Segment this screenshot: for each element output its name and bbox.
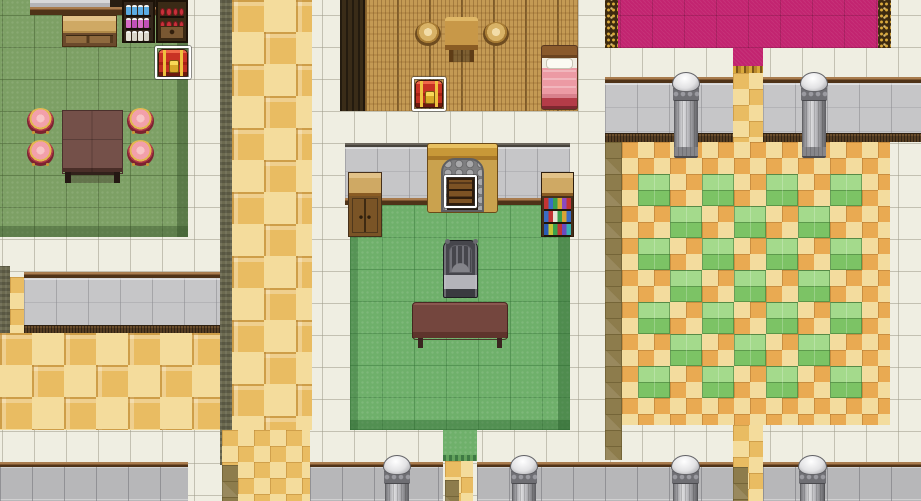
hall-left-edge-gold [10,277,24,333]
stool-pink-1 [27,108,54,134]
shelf-row [126,16,151,30]
green-quilt-tile [670,270,702,302]
green-quilt-tile [798,206,830,238]
book-row [544,211,571,224]
floor-gold-lower-left [0,333,222,430]
selection-barrel [444,175,477,208]
floor-checker-room [622,142,890,425]
tavern-table [62,110,123,185]
wood-room-table [445,17,478,62]
hall-left-edge-shadow [0,266,10,333]
carpet-doorway [733,48,763,73]
corridor-gold [232,0,312,430]
checker-room-shadow [605,142,622,460]
shelf-row [126,3,151,17]
green-quilt-tile [702,302,734,334]
right-wall-ledge-a [605,133,733,142]
green-quilt-tile [638,302,670,334]
green-quilt-tile [766,174,798,206]
bottle-icon [132,18,137,28]
pillar-bottom-1 [383,455,411,501]
green-doorway-olive [445,480,459,501]
pillar-dome [383,455,411,475]
right-wall-face-a [605,83,733,133]
bottom-doorway-olive-right [733,467,748,501]
green-quilt-tile [702,238,734,270]
bookshelf [541,172,574,237]
carpet-pink [618,0,878,48]
bottle-icon [144,31,149,41]
green-quilt-tile [798,270,830,302]
pillar-dome [510,455,538,475]
bottle-icon [138,18,143,28]
green-quilt-tile [734,206,766,238]
green-room-table [412,302,508,350]
pillar-bottom-2 [510,455,538,501]
green-quilt-tile [638,174,670,206]
bottle-icon [132,31,137,41]
wood-stool-2 [483,22,509,46]
green-quilt-tile [670,206,702,238]
bottle-icon [138,5,143,15]
corridor-shadow-strip [220,0,232,465]
book-row [544,198,571,211]
selection-chest-wood-room [412,77,446,111]
bottle-icon [144,5,149,15]
green-quilt-tile [766,238,798,270]
selection-chest-tavern [155,46,191,79]
wood-stool-1 [415,22,441,46]
berry-icon [160,8,165,16]
pillar-bottom-3 [671,455,700,501]
green-quilt-tile [734,270,766,302]
green-quilt-tile [638,238,670,270]
potion-shelf [122,0,155,43]
berry-icon [166,8,171,16]
green-quilt-tile [702,366,734,398]
green-quilt-tile [830,238,862,270]
shelf-drawer [160,26,184,39]
bottle-icon [126,5,131,15]
green-quilt-tile [830,174,862,206]
bottle-icon [126,18,131,28]
green-quilt-tile [766,302,798,334]
stool-pink-4 [127,140,154,166]
bottom-wall-face-2 [310,467,443,501]
bottom-wall-face-4 [763,467,921,501]
goods-shelf [156,0,188,43]
green-quilt-tile [702,174,734,206]
green-quilt-tile [830,302,862,334]
green-doorway [443,430,477,461]
iron-chair [443,240,478,298]
bed [541,45,578,110]
green-quilt-tile [766,366,798,398]
bottle-icon [132,5,137,15]
pillar-dome [800,72,828,92]
hall-left-wall [24,278,222,325]
berry-icon [173,8,178,16]
bottle-icon [144,18,149,28]
corridor-olive-lower [222,465,238,501]
green-quilt-tile [638,366,670,398]
pillar-mid-1 [672,72,700,158]
tile-map[interactable] [0,0,921,501]
cabinet [348,172,382,237]
green-quilt-tile [798,334,830,366]
pillar-dome [671,455,700,475]
shelf-row [126,29,151,43]
right-wall-ledge-b [763,133,921,142]
right-wall-face-b [763,83,921,133]
bottom-wall-face-1 [0,467,188,501]
bottle-icon [138,31,143,41]
right-doorway-gold [733,73,763,142]
berry-icon [179,8,184,16]
shelf-row [160,4,184,18]
bottle-icon [126,31,131,41]
pillar-bottom-4 [798,455,827,501]
green-quilt-tile [670,334,702,366]
green-quilt-tile [734,334,766,366]
pillar-mid-2 [800,72,828,158]
green-quilt-tile [830,366,862,398]
stool-pink-3 [27,140,54,166]
pillar-dome [672,72,700,92]
pillar-dome [798,455,827,475]
stool-pink-2 [127,108,154,134]
carpet-border-left [605,0,618,48]
wood-room-left-wall [340,0,365,111]
shop-counter [62,15,117,47]
carpet-border-right [878,0,891,48]
book-row [544,224,571,237]
